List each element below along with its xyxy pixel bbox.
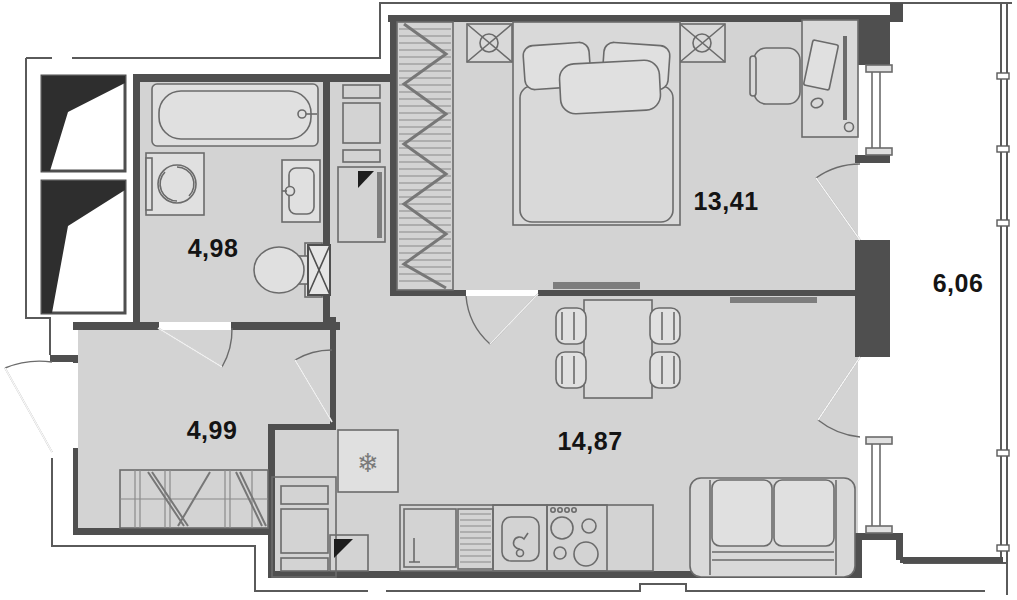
chair bbox=[556, 352, 586, 388]
sofa bbox=[690, 478, 855, 577]
floor-plan-stage: ❄ bbox=[0, 0, 1017, 600]
living-balcony-window bbox=[866, 437, 892, 533]
hallway-area-label: 4,99 bbox=[187, 416, 238, 444]
desk bbox=[802, 20, 858, 137]
chair bbox=[650, 308, 680, 344]
nightstand-right bbox=[680, 24, 725, 62]
entrance-door bbox=[5, 361, 52, 452]
bedroom-area-label: 13,41 bbox=[693, 187, 758, 215]
floor-plan-svg: ❄ bbox=[0, 0, 1017, 600]
kitchen-living-area-label: 14,87 bbox=[557, 427, 622, 455]
bedroom-console bbox=[553, 282, 640, 289]
bathroom-area-label: 4,98 bbox=[188, 234, 239, 262]
elevator-2 bbox=[42, 181, 125, 313]
elevator-shafts bbox=[42, 76, 125, 313]
washing-machine bbox=[146, 153, 204, 215]
double-bed bbox=[513, 22, 680, 225]
chair bbox=[650, 352, 680, 388]
elevator-1 bbox=[42, 76, 125, 171]
balcony-area-label: 6,06 bbox=[933, 269, 984, 297]
bathtub bbox=[152, 84, 318, 146]
fridge: ❄ bbox=[338, 430, 398, 492]
desk-chair bbox=[750, 48, 800, 104]
chair bbox=[556, 308, 586, 344]
vent-shaft-crossed bbox=[308, 245, 330, 295]
bathroom-sink bbox=[282, 160, 320, 222]
living-console bbox=[730, 297, 817, 303]
bedroom-balcony-window bbox=[866, 65, 892, 155]
nightstand-left bbox=[467, 24, 512, 62]
balcony-glazing bbox=[903, 3, 1007, 595]
snowflake-icon: ❄ bbox=[357, 448, 379, 478]
